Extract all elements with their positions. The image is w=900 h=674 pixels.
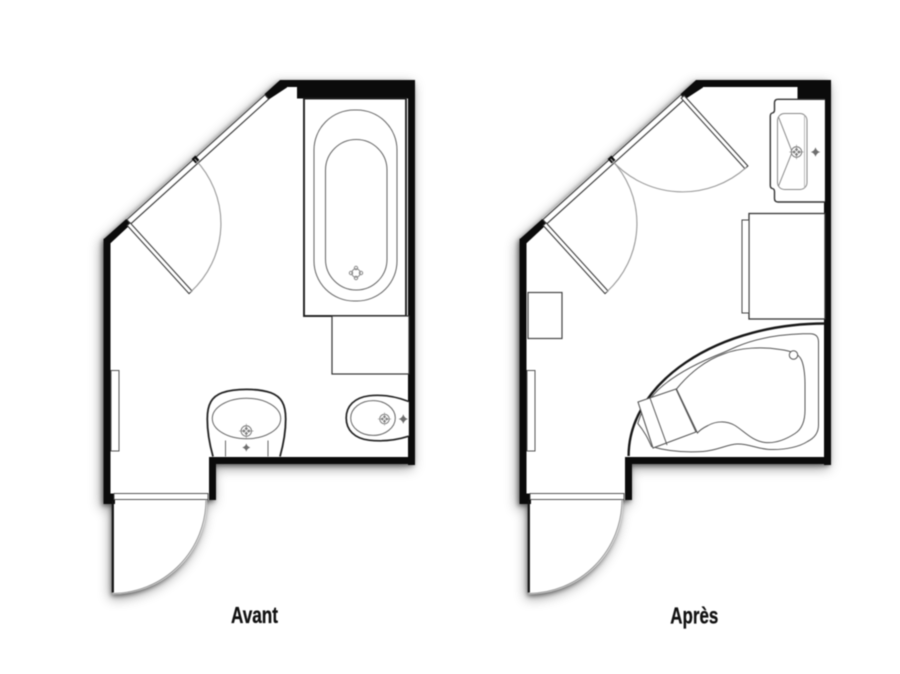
svg-text:Avant: Avant — [231, 602, 278, 628]
svg-text:Après: Après — [670, 603, 718, 629]
